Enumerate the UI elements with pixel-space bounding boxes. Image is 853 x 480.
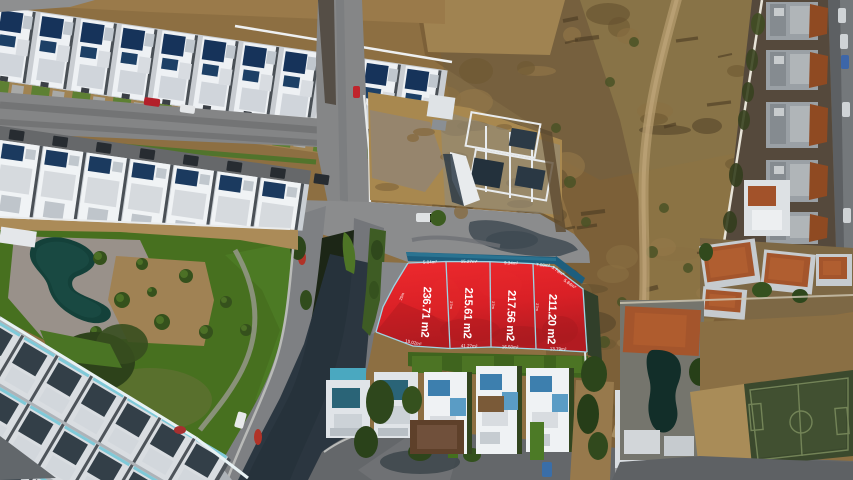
svg-text:215.61 m2: 215.61 m2 bbox=[461, 287, 475, 338]
svg-text:16.50m²: 16.50m² bbox=[502, 344, 519, 350]
svg-text:9.34m²: 9.34m² bbox=[504, 260, 519, 266]
svg-text:5.04m²: 5.04m² bbox=[423, 259, 438, 265]
svg-text:27m: 27m bbox=[491, 301, 496, 309]
svg-text:211.20 m2: 211.20 m2 bbox=[545, 294, 559, 345]
svg-text:13.79m²: 13.79m² bbox=[550, 346, 567, 352]
svg-text:7.08m²: 7.08m² bbox=[536, 262, 551, 268]
svg-text:15.27m²: 15.27m² bbox=[461, 259, 478, 264]
svg-text:41.27m²: 41.27m² bbox=[461, 343, 478, 349]
svg-text:27m: 27m bbox=[449, 301, 454, 309]
svg-text:217.56 m2: 217.56 m2 bbox=[504, 290, 518, 341]
svg-text:27m: 27m bbox=[535, 303, 540, 311]
